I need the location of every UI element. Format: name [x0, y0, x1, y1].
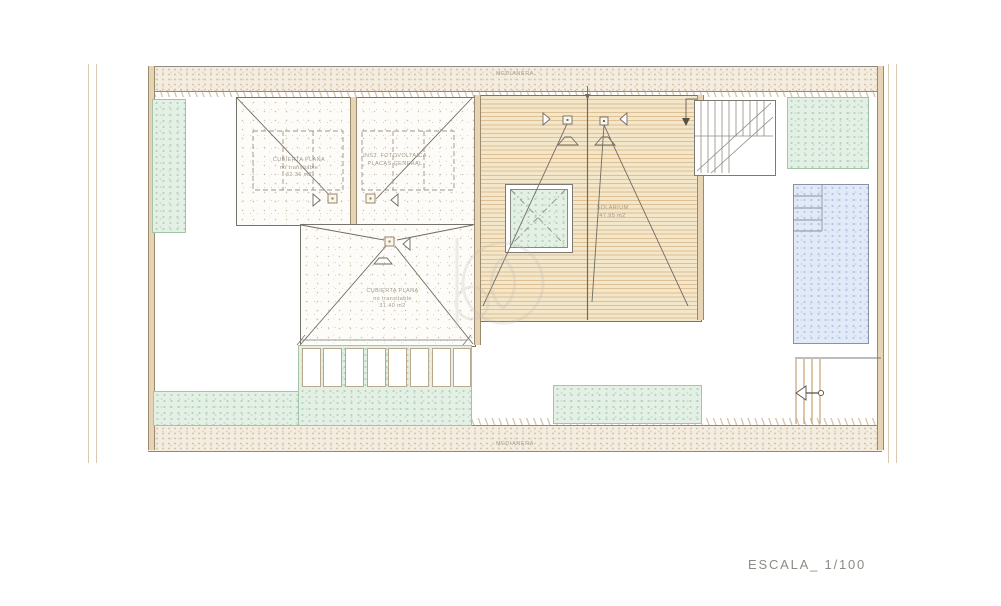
- roof-mid-label-line1: CUBIERTA PLANA: [345, 288, 440, 296]
- pool: [793, 184, 869, 344]
- roof-left-label-line1: CUBIERTA PLANA: [254, 157, 344, 165]
- pergola-slat: [388, 348, 407, 387]
- drawing-sheet: MEDIANERA MEDIANERA CUBIERTA PLANA no tr…: [0, 0, 1001, 606]
- medianera-band-top: [148, 66, 882, 92]
- pergola-slat: [410, 348, 429, 387]
- scale-label: ESCALA_ 1/100: [748, 557, 908, 572]
- roof-mid-label: CUBIERTA PLANA no transitable 31.40 m2: [345, 288, 440, 311]
- garden-patch-top-right: [787, 97, 869, 169]
- solarium-wall-left: [474, 95, 481, 345]
- garden-strip-left: [152, 99, 186, 233]
- flat-roof-mid: [300, 224, 476, 347]
- roof-mid-label-line2: no transitable: [345, 296, 440, 304]
- roof-mid-label-line3: 31.40 m2: [345, 303, 440, 311]
- sheet-margin-line: [896, 64, 897, 463]
- pergola-slat: [367, 348, 386, 387]
- roof-pv-label-line1: INST. FOTOVOLTAICA: [350, 153, 440, 161]
- pergola-slat: [302, 348, 321, 387]
- roof-left-label-line2: no transitable: [254, 165, 344, 173]
- roof-pv-label: INST. FOTOVOLTAICA PLACAS GENERAL: [350, 153, 440, 168]
- stair-lower: [795, 358, 881, 424]
- pergola-slat: [432, 348, 451, 387]
- pergola-slat: [345, 348, 364, 387]
- solarium-label-line2: 47.95 m2: [585, 213, 640, 221]
- medianera-label-top: MEDIANERA: [455, 71, 575, 77]
- pergola-slat: [453, 348, 471, 387]
- pergola-slat: [323, 348, 342, 387]
- stair-upper: [694, 100, 776, 176]
- skylight-glass: [510, 189, 568, 248]
- sheet-margin-line: [96, 64, 97, 463]
- boundary-wall-right: [877, 66, 884, 450]
- roof-left-label-line3: 32.36 m2: [254, 172, 344, 180]
- solarium-label: SOLARIUM 47.95 m2: [585, 205, 640, 220]
- roof-left-label: CUBIERTA PLANA no transitable 32.36 m2: [254, 157, 344, 180]
- medianera-band-bottom: [148, 425, 882, 452]
- sheet-margin-line: [888, 64, 889, 463]
- medianera-label-bottom: MEDIANERA: [455, 441, 575, 447]
- roof-pv-label-line2: PLACAS GENERAL: [350, 161, 440, 169]
- garden-rect-bottom: [553, 385, 702, 424]
- garden-strip-bottom-left: [153, 391, 300, 426]
- solarium-label-line1: SOLARIUM: [585, 205, 640, 213]
- sheet-margin-line: [88, 64, 89, 463]
